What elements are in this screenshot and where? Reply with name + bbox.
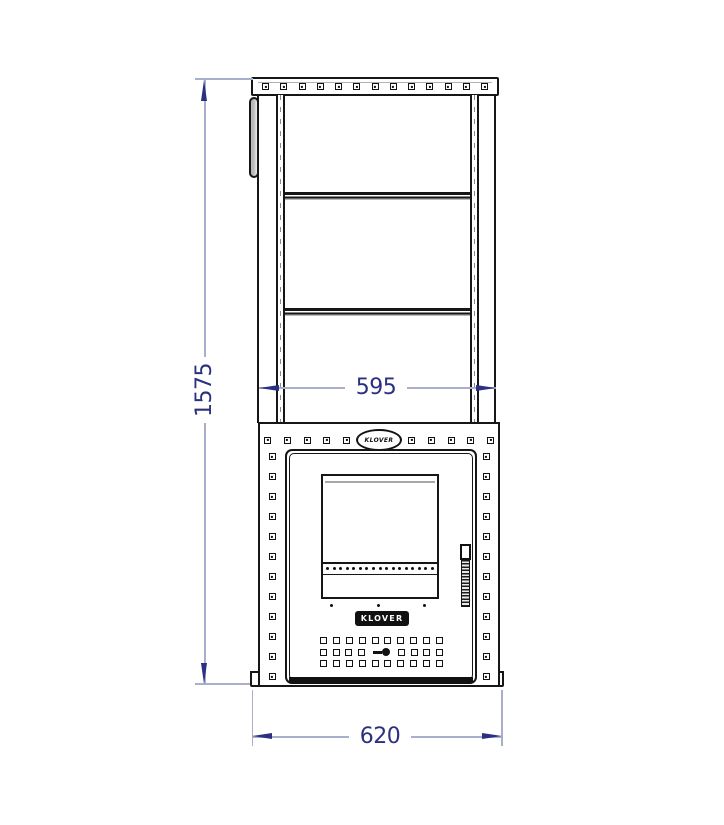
- window-divider-line: [323, 562, 437, 564]
- vent-square: [398, 649, 405, 656]
- vent-square: [359, 637, 366, 644]
- door-glass-window: [321, 474, 439, 599]
- air-hole-dot: [398, 567, 401, 570]
- cage-right-post: [470, 95, 479, 423]
- dim-height-label: 1575: [193, 357, 217, 423]
- vent-square: [346, 637, 353, 644]
- rivet-icon: [487, 437, 494, 444]
- window-divider-line-2: [323, 574, 437, 576]
- firebox-body: KLOVER KLOVER: [258, 422, 500, 687]
- rivet-icon: [269, 533, 276, 540]
- rivet-icon: [390, 83, 397, 90]
- vent-square: [423, 637, 430, 644]
- rivet-group-right: [408, 437, 494, 444]
- rivet-icon: [335, 83, 342, 90]
- vent-row-1: [320, 637, 443, 644]
- vent-square: [333, 649, 340, 656]
- rivet-column-left: [268, 453, 276, 680]
- vent-square: [436, 660, 443, 667]
- vent-square: [346, 660, 353, 667]
- rivet-icon: [467, 437, 474, 444]
- rivet-icon: [428, 437, 435, 444]
- rivet-icon: [264, 437, 271, 444]
- vent-square: [410, 637, 417, 644]
- rivet-icon: [269, 573, 276, 580]
- vent-square: [372, 660, 379, 667]
- rivet-icon: [483, 573, 490, 580]
- rivet-icon: [463, 83, 470, 90]
- door-latch-shaft[interactable]: [461, 559, 470, 607]
- rivet-icon: [481, 83, 488, 90]
- air-hole-dot: [392, 567, 395, 570]
- rivet-icon: [269, 613, 276, 620]
- rivet-icon: [304, 437, 311, 444]
- rivet-icon: [343, 437, 350, 444]
- vent-square: [358, 649, 365, 656]
- rivet-icon: [269, 493, 276, 500]
- dim-cage-label: 595: [345, 376, 407, 400]
- rivet-icon: [269, 473, 276, 480]
- dim-base-label: 620: [349, 725, 411, 749]
- vent-square: [320, 649, 327, 656]
- rivet-icon: [269, 653, 276, 660]
- cage-shelf-lower: [285, 308, 470, 316]
- cage-right-edge: [494, 95, 496, 423]
- air-hole-dot: [339, 567, 342, 570]
- cap-rivet-row: [262, 79, 488, 94]
- air-hole-dot: [418, 567, 421, 570]
- air-hole-dot: [346, 567, 349, 570]
- dim-cage-arrow-left: [259, 385, 279, 391]
- rivet-icon: [445, 83, 452, 90]
- oval-brand-logo: KLOVER: [356, 429, 402, 451]
- cage-shelf-upper: [285, 192, 470, 200]
- rivet-icon: [353, 83, 360, 90]
- rivet-icon: [323, 437, 330, 444]
- air-hole-dot: [424, 567, 427, 570]
- rivet-icon: [426, 83, 433, 90]
- air-hole-dot: [359, 567, 362, 570]
- vent-square: [345, 649, 352, 656]
- screw-dot: [330, 604, 333, 607]
- air-hole-dot: [379, 567, 382, 570]
- vent-row-3: [320, 660, 443, 667]
- vent-square: [436, 649, 443, 656]
- air-hole-dot: [326, 567, 329, 570]
- air-hole-dot: [372, 567, 375, 570]
- vent-row-2-left: [320, 649, 365, 656]
- rivet-icon: [269, 553, 276, 560]
- rivet-icon: [483, 513, 490, 520]
- vent-square: [436, 637, 443, 644]
- glass-retainer-line: [325, 481, 435, 483]
- key-slot-icon[interactable]: [373, 648, 390, 656]
- air-vent-grid: [320, 637, 443, 667]
- vent-square: [333, 637, 340, 644]
- rivet-icon: [483, 473, 490, 480]
- rivet-icon: [483, 553, 490, 560]
- rivet-icon: [483, 493, 490, 500]
- rivet-icon: [483, 673, 490, 680]
- rivet-icon: [483, 613, 490, 620]
- vent-square: [410, 660, 417, 667]
- air-hole-dot: [385, 567, 388, 570]
- vent-square: [320, 637, 327, 644]
- vent-square: [397, 637, 404, 644]
- screw-dot: [423, 604, 426, 607]
- brand-plate: KLOVER: [355, 611, 409, 626]
- vent-square: [372, 637, 379, 644]
- stove-technical-drawing: KLOVER KLOVER: [0, 0, 724, 825]
- rivet-icon: [448, 437, 455, 444]
- dim-height-arrow-up: [201, 80, 207, 101]
- screw-dot: [377, 604, 380, 607]
- dim-base-arrow-left: [252, 733, 272, 739]
- rivet-icon: [280, 83, 287, 90]
- firebox-door[interactable]: KLOVER: [285, 449, 477, 684]
- rivet-icon: [483, 633, 490, 640]
- rivet-icon: [483, 453, 490, 460]
- top-cap: [251, 77, 499, 96]
- vent-square: [333, 660, 340, 667]
- air-hole-dot: [333, 567, 336, 570]
- air-hole-dot: [365, 567, 368, 570]
- door-bottom-band: [289, 677, 473, 684]
- rivet-icon: [408, 83, 415, 90]
- door-latch-block[interactable]: [460, 544, 471, 560]
- vent-square: [397, 660, 404, 667]
- vent-square: [423, 649, 430, 656]
- rivet-icon: [269, 453, 276, 460]
- rivet-icon: [269, 593, 276, 600]
- rivet-group-left: [264, 437, 350, 444]
- rivet-icon: [408, 437, 415, 444]
- rivet-icon: [269, 513, 276, 520]
- rivet-icon: [372, 83, 379, 90]
- vent-square: [411, 649, 418, 656]
- rivet-icon: [299, 83, 306, 90]
- dim-base-arrow-right: [482, 733, 502, 739]
- vent-square: [320, 660, 327, 667]
- vent-row-2-right: [398, 649, 443, 656]
- rivet-icon: [269, 633, 276, 640]
- dim-cage-arrow-right: [476, 385, 496, 391]
- air-hole-dot: [431, 567, 434, 570]
- rivet-icon: [483, 593, 490, 600]
- vent-square: [384, 637, 391, 644]
- rivet-icon: [483, 533, 490, 540]
- rivet-icon: [483, 653, 490, 660]
- vent-square: [423, 660, 430, 667]
- rivet-column-right: [482, 453, 490, 680]
- rivet-icon: [262, 83, 269, 90]
- rivet-icon: [269, 673, 276, 680]
- window-air-holes: [326, 566, 434, 570]
- air-hole-dot: [405, 567, 408, 570]
- air-hole-dot: [411, 567, 414, 570]
- rivet-icon: [317, 83, 324, 90]
- vent-square: [384, 660, 391, 667]
- under-window-screws: [330, 603, 426, 607]
- vent-row-2: [320, 648, 443, 656]
- air-hole-dot: [352, 567, 355, 570]
- dim-height-arrow-down: [201, 663, 207, 684]
- vent-square: [359, 660, 366, 667]
- cage-left-post: [276, 95, 285, 423]
- cage-left-edge: [257, 95, 259, 423]
- rivet-icon: [284, 437, 291, 444]
